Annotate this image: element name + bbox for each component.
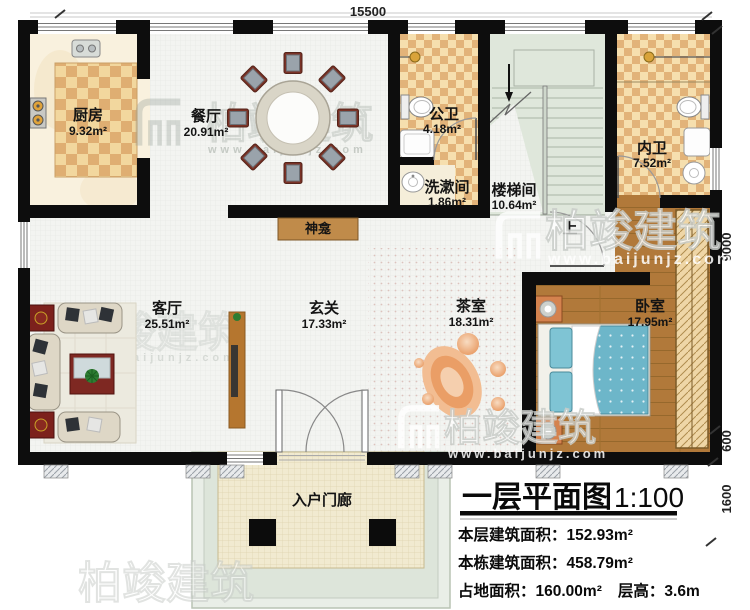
bath-sink [683,162,705,184]
stairwell-label: 楼梯间 [491,181,536,199]
title-underline [460,511,677,516]
wall-dining-south [228,205,390,218]
pebble [414,358,424,368]
plan-title: 一层平面图 [462,481,612,514]
watermark-brand-bedroom: 柏竣建筑 [545,207,721,256]
washroom-fixtures [402,172,424,192]
living-label: 客厅 [151,299,182,317]
towel-ring [644,52,654,62]
watermark-logo-corner [23,555,66,601]
foyer-area: 17.33m² [302,317,347,331]
public-bath-label: 公卫 [429,106,459,123]
bedroom-label: 卧室 [635,297,665,315]
towel-ring [410,52,420,62]
washroom-area: 1.86m² [428,195,466,209]
floor-plan-svg: 柏竣建筑 www.baijunjz.com 柏竣建筑 www.baijunjz.… [0,0,750,610]
stat-footprint-value: 160.00m² [536,583,602,600]
pebble [422,393,434,405]
wall-stair-left [478,34,490,218]
tea-label: 茶室 [456,297,486,315]
sink-basin [89,45,96,52]
shrine-cabinet: 神龛 [278,218,358,240]
toilet-bowl [677,97,701,117]
floor-plan-page: 柏竣建筑 www.baijunjz.com 柏竣建筑 www.baijunjz.… [0,0,750,610]
corner-table-decor [35,312,47,324]
right-window [710,148,722,190]
plan-scale: 1:100 [614,482,684,513]
kitchen-area: 9.32m² [69,124,107,138]
watermark-brand-tea: 柏竣建筑 [444,408,596,450]
stat-floor-area-value: 152.93m² [567,527,633,544]
dining-table-top [267,92,319,144]
watermark-url-bedroom: www.baijunjz.com [547,251,734,268]
sink-tap [412,175,415,178]
sofa-pillow [32,361,47,376]
shrine-label: 神龛 [305,221,332,236]
toilet-tank [401,95,409,119]
cabinet-plant [233,313,241,321]
burner-center [36,104,39,107]
stat-height-label: 层高： [618,581,665,600]
dining-set [228,53,359,184]
stat-height-value: 3.6m [664,583,699,600]
bedside-lamp-bulb [545,306,552,313]
stat-total-area-label: 本栋建筑面积： [458,553,567,572]
dim-right-steps: 1600 [719,485,734,514]
stat-floor-area: 本层建筑面积：152.93m² [458,525,633,544]
pebble [490,361,506,377]
living-area: 25.51m² [145,317,190,331]
sink-basin [77,45,84,52]
stat-footprint: 占地面积：160.00m²层高：3.6m [458,581,700,600]
washroom-label: 洗漱间 [424,178,469,196]
foyer-label: 玄关 [309,299,339,317]
pillow [550,372,572,412]
left-window [18,222,30,268]
burner-center [36,118,39,121]
sofa-pillow [99,307,114,322]
bedroom-area: 17.95m² [628,315,673,329]
entry-door-leaf-right [362,390,368,452]
dim-right-wall: 600 [719,430,734,452]
dining-area: 20.91m² [184,125,229,139]
watermark-brand-corner: 柏竣建筑 [78,559,254,608]
tea-area: 18.31m² [449,315,494,329]
stat-footprint-label: 占地面积： [458,581,536,600]
wall-kitchen-bottom [18,205,150,218]
inner-bath-area: 7.52m² [633,156,671,170]
stat-floor-area-label: 本层建筑面积： [458,525,567,544]
kitchen-label: 厨房 [73,106,103,124]
watermark-url-tea: www.baijunjz.com [447,446,608,461]
bottom-window [227,452,263,465]
pillow [550,328,572,368]
porch-tile [218,452,424,568]
porch-column [249,519,276,546]
tv-screen [231,345,238,397]
stat-total-area-value: 458.79m² [567,555,633,572]
stair-rail [543,86,547,214]
sofa-pillow [33,383,48,398]
plant-leaves [85,369,99,383]
sofa-pillow [65,307,80,322]
porch-column [369,519,396,546]
toilet-tank [701,95,709,119]
wall-bed-head [522,272,650,285]
public-bath-area: 4.18m² [423,122,461,136]
pebble [457,333,479,355]
wall-bath-divider [400,157,434,165]
inner-bath-label: 内卫 [637,139,667,157]
stairwell-area-label: 10.64m² [492,198,537,212]
wall-top [18,20,722,34]
washing-machine [684,128,710,156]
sofa-pillow [83,309,98,324]
sofa-pillow [65,417,80,432]
corner-table-decor [35,419,47,431]
dining-label: 餐厅 [191,107,221,125]
stat-total-area: 本栋建筑面积：458.79m² [458,553,633,572]
title-block: 一层平面图 1:100 本层建筑面积：152.93m² 本栋建筑面积：458.7… [458,481,700,600]
wall-publicbath-left [388,34,400,218]
wall-kitchen-right-upper [137,34,150,79]
dim-top: 15500 [350,4,386,19]
sofa-pillow [87,417,102,432]
wall-innerbath-left [605,34,617,212]
porch-label: 入户门廊 [292,491,352,509]
entry-door-leaf-left [276,390,282,452]
